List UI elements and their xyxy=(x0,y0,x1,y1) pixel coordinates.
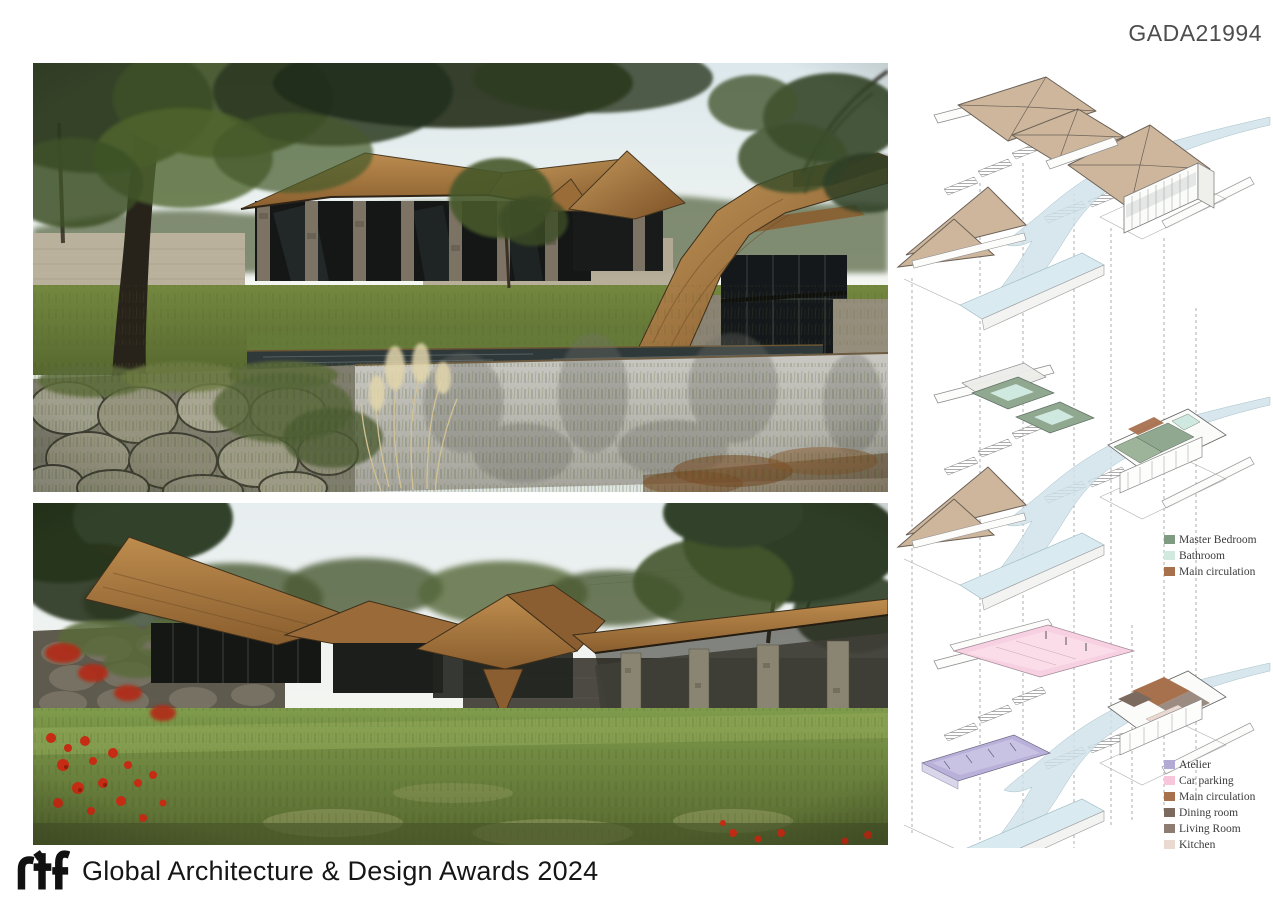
render-photo-pool-terrace xyxy=(33,63,888,492)
legend-item-atelier: Atelier xyxy=(1164,758,1255,771)
legend-swatch xyxy=(1164,535,1175,544)
legend-item-bathroom: Bathroom xyxy=(1164,549,1257,562)
legend-label: Kitchen xyxy=(1179,839,1215,851)
legend-swatch xyxy=(1164,808,1175,817)
exploded-axon-diagram xyxy=(896,63,1273,848)
vignette xyxy=(33,63,888,492)
legend-label: Living Room xyxy=(1179,823,1241,835)
legend-label: Master Bedroom xyxy=(1179,534,1257,546)
legend-swatch xyxy=(1164,551,1175,560)
legend-bedroom-level: Master Bedroom Bathroom Main circulation xyxy=(1164,533,1257,578)
legend-item-dining-room: Dining room xyxy=(1164,806,1255,819)
legend-swatch xyxy=(1164,567,1175,576)
legend-item-kitchen: Kitchen xyxy=(1164,838,1255,851)
rtf-logo: rtf xyxy=(14,846,70,897)
award-board: { "board": { "id": "GADA21994" }, "foote… xyxy=(0,0,1273,900)
footer-title: Global Architecture & Design Awards 2024 xyxy=(82,856,598,887)
axon-level-roof xyxy=(898,77,1270,330)
legend-label: Dining room xyxy=(1179,807,1238,819)
legend-item-main-circulation: Main circulation xyxy=(1164,565,1257,578)
legend-swatch xyxy=(1164,760,1175,769)
legend-label: Bathroom xyxy=(1179,550,1225,562)
footer: rtf Global Architecture & Design Awards … xyxy=(14,846,598,896)
legend-label: Main circulation xyxy=(1179,791,1255,803)
legend-item-car-parking: Car parking xyxy=(1164,774,1255,787)
legend-swatch xyxy=(1164,792,1175,801)
legend-ground-level: Atelier Car parking Main circulation Din… xyxy=(1164,758,1255,851)
render-photo-lawn-colonnade xyxy=(33,503,888,845)
legend-item-living-room: Living Room xyxy=(1164,822,1255,835)
legend-item-master-bedroom: Master Bedroom xyxy=(1164,533,1257,546)
legend-label: Main circulation xyxy=(1179,566,1255,578)
legend-swatch xyxy=(1164,840,1175,849)
legend-label: Car parking xyxy=(1179,775,1234,787)
board-id-label: GADA21994 xyxy=(1128,20,1262,47)
legend-item-main-circulation: Main circulation xyxy=(1164,790,1255,803)
legend-swatch xyxy=(1164,824,1175,833)
vignette xyxy=(33,503,888,845)
legend-label: Atelier xyxy=(1179,759,1211,771)
legend-swatch xyxy=(1164,776,1175,785)
